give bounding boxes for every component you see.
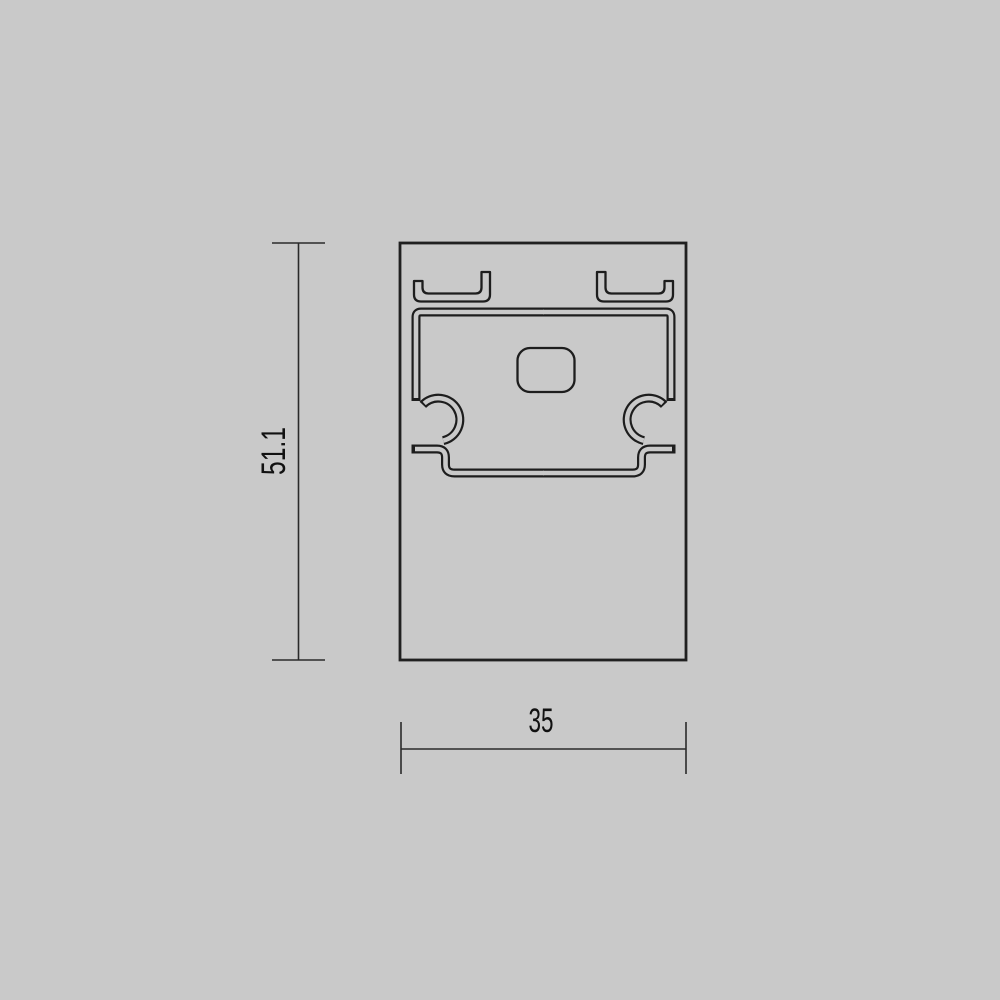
technical-drawing: 51.1 35 <box>0 0 1000 1000</box>
left-finger-and-bottom-wall <box>412 449 545 473</box>
right-finger-and-bottom-wall <box>543 449 676 473</box>
top-wall-and-left-rail <box>416 312 544 401</box>
left-mounting-clip <box>414 272 490 302</box>
top-wall-and-right-rail-core <box>543 312 671 401</box>
top-wall-and-left-rail-core <box>416 312 544 401</box>
right-mounting-clip <box>597 272 673 302</box>
height-dimension-label: 51.1 <box>255 427 293 475</box>
width-dimension-label: 35 <box>529 702 554 740</box>
center-screw-slot <box>518 348 575 392</box>
top-wall-and-right-rail <box>543 312 671 401</box>
mounting-clips <box>414 272 673 302</box>
drawing-canvas: 51.1 35 <box>0 0 1000 1000</box>
